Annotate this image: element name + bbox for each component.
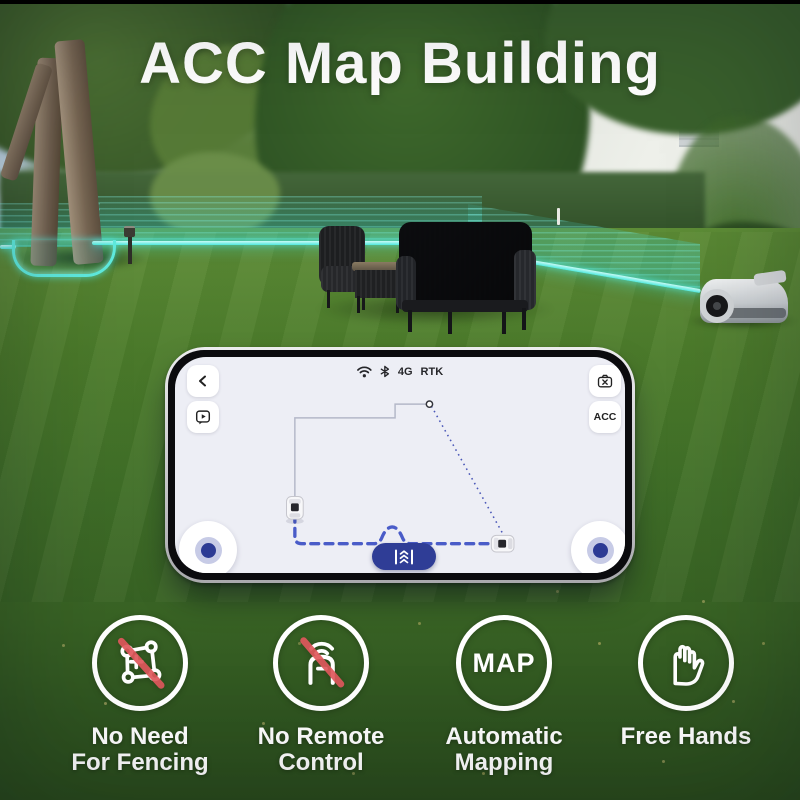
dock-chevrons-icon bbox=[389, 548, 419, 566]
feature-free-hands: Free Hands bbox=[591, 615, 781, 750]
feature-label: Free Hands bbox=[621, 724, 752, 750]
joystick-dot bbox=[593, 543, 608, 558]
feature-circle bbox=[273, 615, 369, 711]
loveseat-leg bbox=[408, 310, 412, 332]
joystick-ring bbox=[587, 537, 614, 564]
network-label: 4G bbox=[398, 366, 413, 378]
feature-label: Automatic Mapping bbox=[445, 724, 562, 777]
phone-bezel: 4G RTK bbox=[168, 350, 632, 580]
rtk-label: RTK bbox=[421, 366, 444, 378]
table-leg bbox=[357, 296, 360, 313]
tutorial-video-button[interactable] bbox=[187, 401, 219, 433]
map-badge-text: MAP bbox=[473, 648, 536, 679]
dashed-path-line bbox=[295, 514, 490, 543]
mapped-boundary-line bbox=[295, 404, 430, 500]
status-bar: 4G RTK bbox=[357, 365, 443, 378]
garden-lamp bbox=[128, 234, 132, 264]
video-tutorial-icon bbox=[194, 408, 212, 426]
acc-button-label: ACC bbox=[594, 411, 617, 423]
wifi-icon bbox=[357, 366, 372, 378]
patio-table bbox=[355, 270, 401, 298]
no-fencing-icon bbox=[109, 632, 171, 694]
left-joystick[interactable] bbox=[179, 521, 237, 573]
boundary-bulge bbox=[12, 240, 116, 277]
robot-marker-horizontal bbox=[491, 535, 514, 552]
free-hands-icon bbox=[656, 633, 716, 693]
feature-circle bbox=[92, 615, 188, 711]
dotted-heading-line bbox=[431, 406, 505, 538]
no-remote-icon bbox=[290, 632, 352, 694]
acc-button[interactable]: ACC bbox=[589, 401, 621, 433]
dock-button[interactable] bbox=[372, 543, 436, 570]
robot-mower-hub bbox=[713, 302, 721, 310]
joystick-dot bbox=[201, 543, 216, 558]
patio-loveseat-back bbox=[399, 222, 532, 306]
joystick-ring bbox=[195, 537, 222, 564]
map-badge-icon: MAP bbox=[456, 615, 552, 711]
loveseat-leg bbox=[502, 312, 506, 334]
garden-lamp-head bbox=[124, 226, 135, 237]
feature-circle bbox=[638, 615, 734, 711]
marketing-image: ACC Map Building bbox=[0, 0, 800, 800]
loveseat-seat bbox=[402, 300, 528, 312]
feature-label: No Need For Fencing bbox=[71, 724, 208, 777]
feature-no-remote: No Remote Control bbox=[226, 615, 416, 777]
map-canvas[interactable] bbox=[175, 357, 625, 573]
camera-off-button[interactable] bbox=[589, 365, 621, 397]
page-title: ACC Map Building bbox=[0, 30, 800, 97]
feature-label: No Remote Control bbox=[258, 724, 385, 777]
phone-mockup: 4G RTK bbox=[165, 347, 635, 583]
chair-leg bbox=[327, 290, 330, 308]
bluetooth-icon bbox=[380, 365, 390, 378]
loveseat-leg bbox=[522, 308, 526, 330]
loveseat-leg bbox=[448, 312, 452, 334]
rtk-stake bbox=[557, 208, 560, 225]
robot-marker-vertical bbox=[286, 497, 304, 525]
app-screen: 4G RTK bbox=[175, 357, 625, 573]
start-point-marker bbox=[426, 401, 432, 407]
letterbox-strip bbox=[0, 0, 800, 4]
camera-off-icon bbox=[596, 372, 614, 390]
feature-auto-mapping: MAP Automatic Mapping bbox=[409, 615, 599, 777]
right-joystick[interactable] bbox=[571, 521, 625, 573]
feature-no-fencing: No Need For Fencing bbox=[45, 615, 235, 777]
chevron-left-icon bbox=[196, 374, 210, 388]
back-button[interactable] bbox=[187, 365, 219, 397]
